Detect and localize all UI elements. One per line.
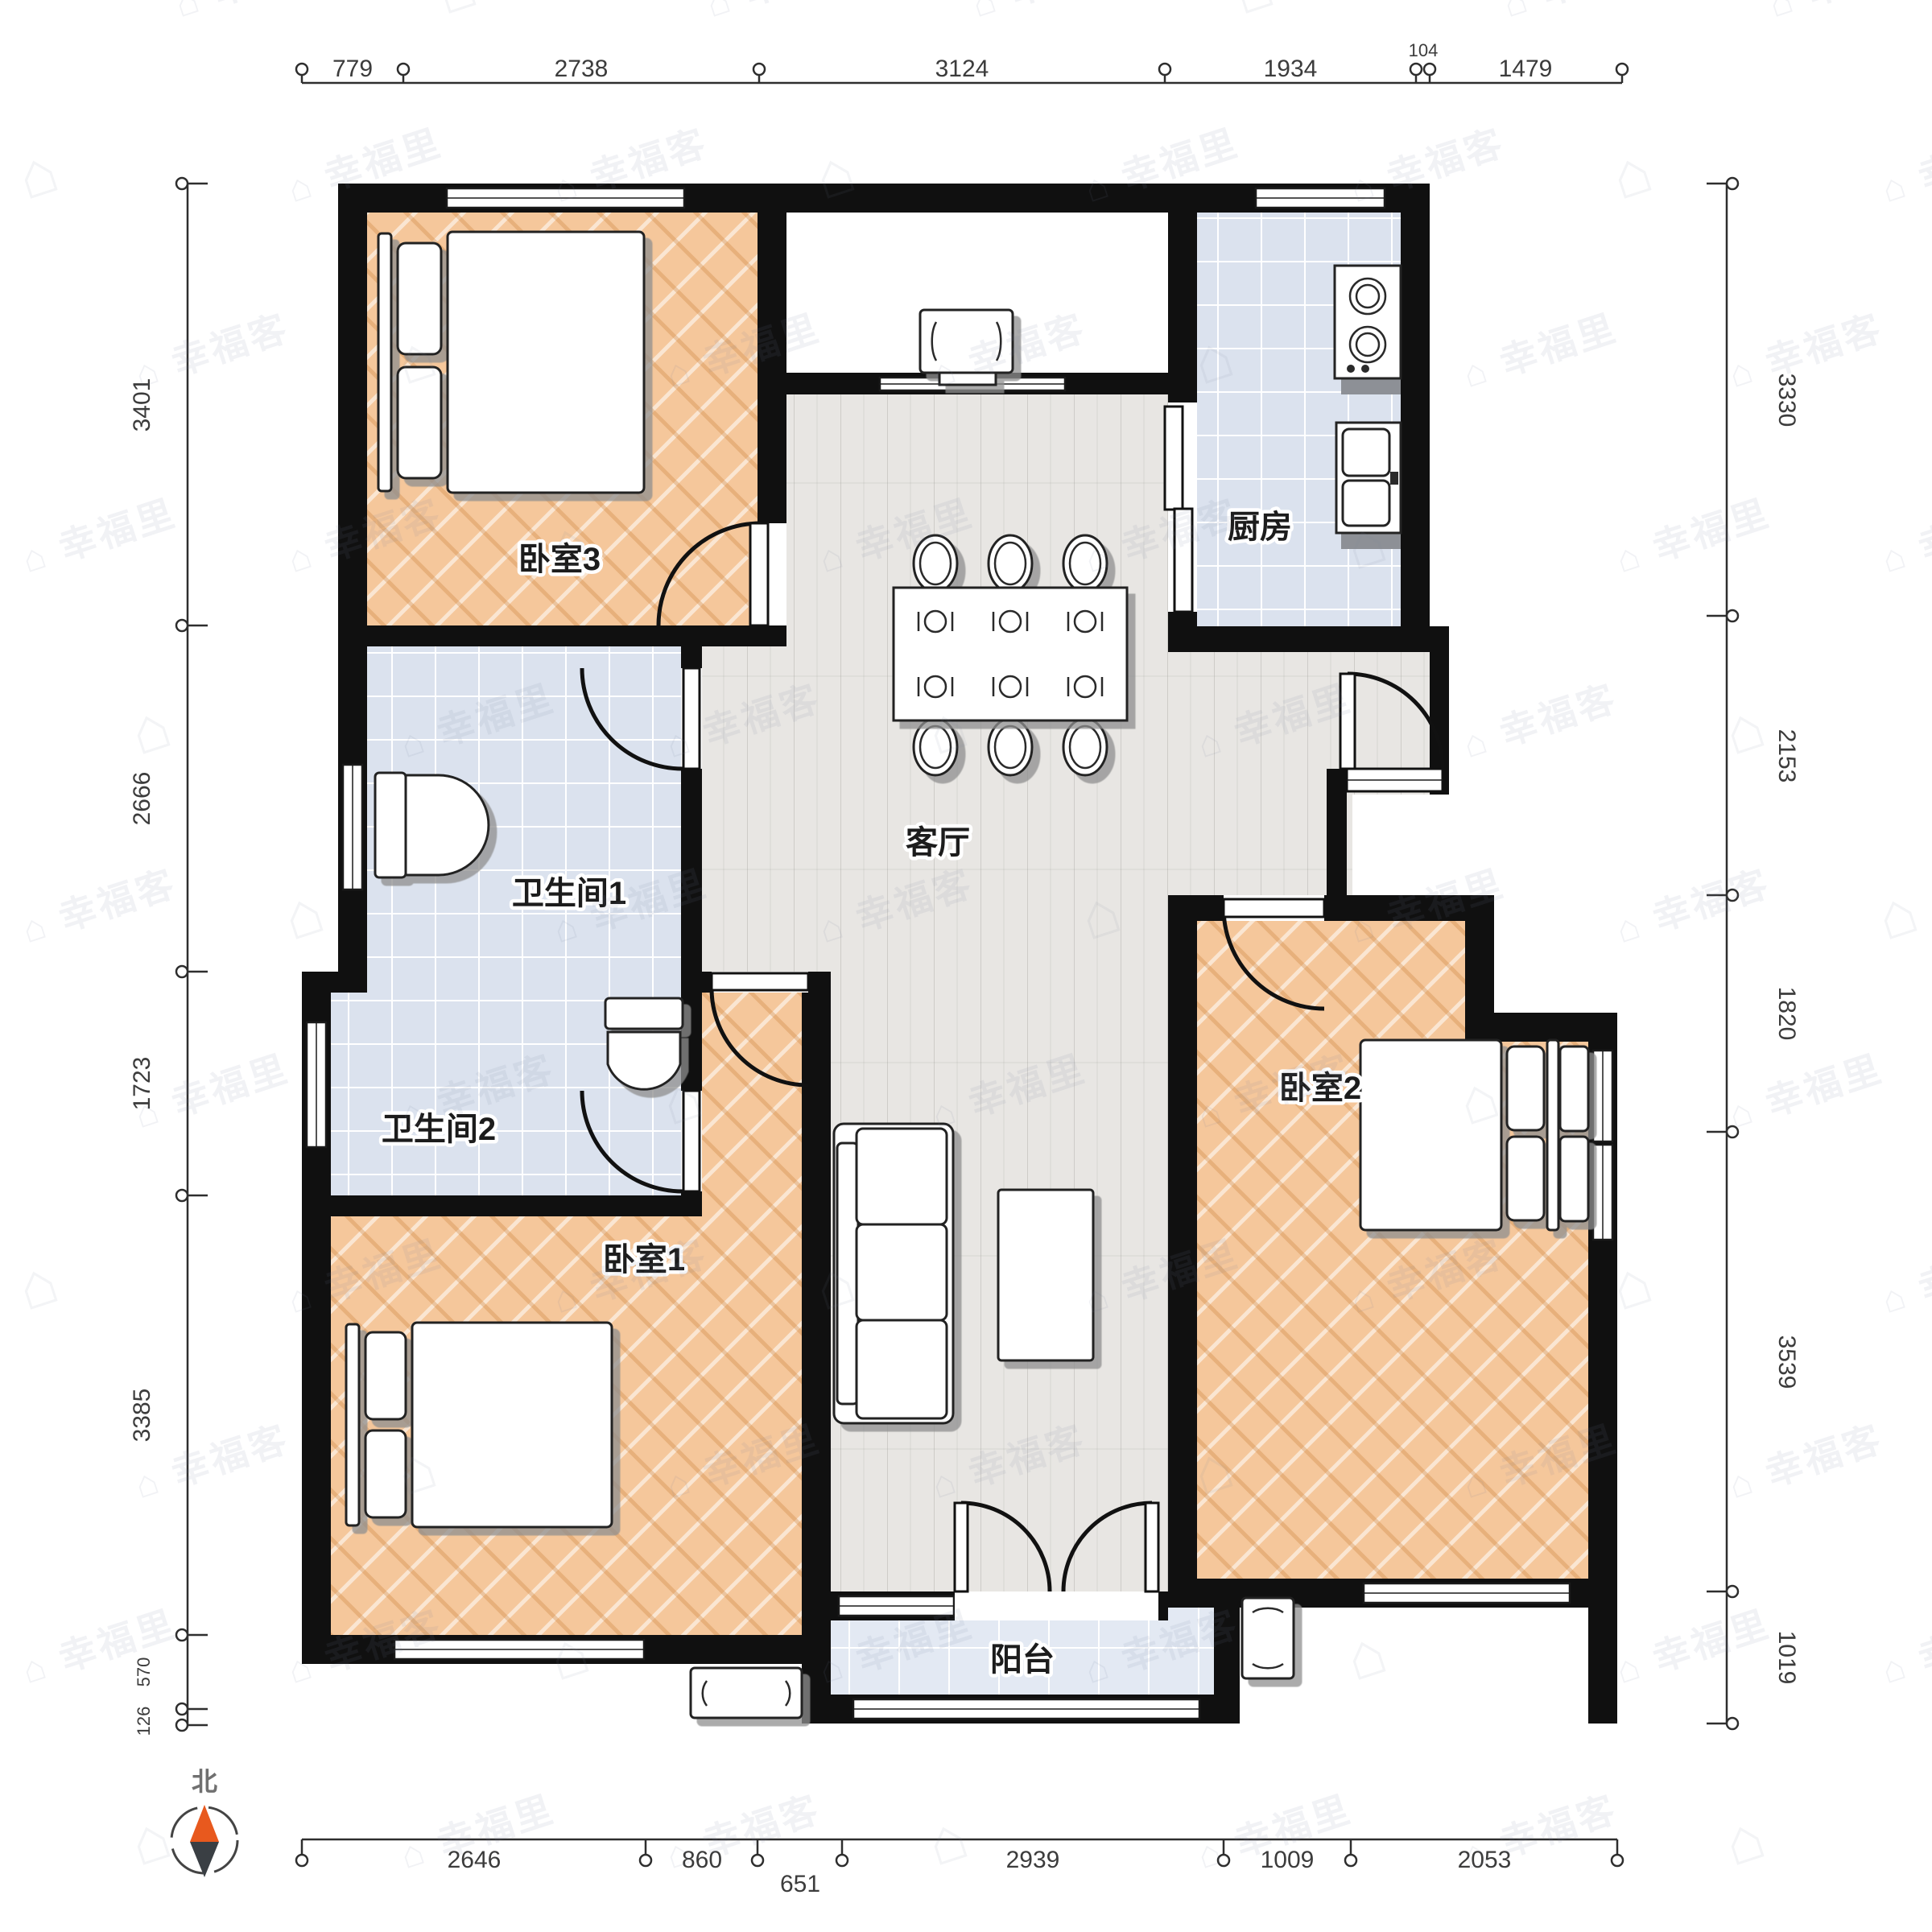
dim-left-3: 3385	[129, 1389, 155, 1443]
wall-niche-right	[1588, 1608, 1617, 1724]
label-bathroom2: 卫生间2	[382, 1112, 496, 1147]
dim-left-0: 3401	[129, 378, 155, 432]
dim-left-4: 570	[134, 1657, 154, 1687]
wall-kitchen-bottom	[1168, 626, 1449, 652]
wall-balcony-left	[802, 1591, 831, 1724]
dim-bottom-1: 860	[682, 1847, 722, 1873]
dim-left-2: 1723	[129, 1057, 155, 1111]
dim-top-3: 1934	[1264, 56, 1318, 82]
dining-set	[894, 535, 1127, 775]
wall-bath2-bottom	[302, 1195, 702, 1216]
bedroom2-east-window-b	[1593, 1145, 1612, 1240]
dim-right-3: 3539	[1773, 1335, 1800, 1389]
label-bedroom2: 卧室2	[1279, 1071, 1361, 1106]
sofa	[834, 1124, 953, 1423]
kitchen-window	[1256, 188, 1385, 208]
dim-bottom-3: 2939	[1006, 1847, 1060, 1873]
label-bathroom1: 卫生间1	[512, 876, 626, 911]
floor-plan: 卧室3 厨房 卫生间1 卫生间2 客厅 卧室1 卧室2 阳台 779 2738 …	[0, 0, 1932, 1932]
dim-top-5: 1479	[1499, 56, 1553, 82]
label-kitchen: 厨房	[1228, 510, 1292, 545]
dim-bottom-2: 651	[780, 1871, 820, 1897]
dim-top-1: 2738	[555, 56, 609, 82]
wall-bedroom3-bottom	[338, 625, 786, 646]
dim-right: 3330 2153 1820 3539 1019	[1707, 178, 1800, 1729]
dining-table	[894, 588, 1127, 720]
dim-bottom-4: 1009	[1261, 1847, 1315, 1873]
balcony-window	[853, 1699, 1199, 1719]
dim-right-0: 3330	[1773, 374, 1800, 427]
compass: 北	[171, 1767, 237, 1877]
balcony-side-cabinet	[1242, 1598, 1294, 1678]
dim-left: 3401 2666 1723 3385 570 126	[129, 178, 208, 1736]
dim-top-0: 779	[332, 56, 373, 82]
toilet-bathroom1	[375, 773, 489, 877]
compass-north-label: 北	[192, 1767, 217, 1796]
compass-needle-north	[190, 1805, 219, 1842]
dim-left-5: 126	[134, 1707, 154, 1736]
wall-bedroom2-left	[1168, 895, 1197, 1608]
bedroom1-window	[394, 1640, 644, 1659]
label-bedroom3: 卧室3	[518, 542, 601, 577]
wall-bedroom2-top	[1168, 895, 1494, 921]
bathroom2-window	[307, 1022, 326, 1147]
kitchen-sliding-door	[1165, 402, 1197, 612]
stove	[1335, 266, 1401, 394]
bedroom2-south-window	[1364, 1583, 1570, 1603]
dim-bottom-0: 2646	[448, 1847, 502, 1873]
coffee-table	[998, 1190, 1093, 1360]
label-bedroom1: 卧室1	[603, 1242, 685, 1278]
dim-top-4: 104	[1409, 40, 1439, 60]
floorplan-page: { "plan_type": "apartment-floor-plan", "…	[0, 0, 1932, 1932]
living-balcony-window	[839, 1596, 954, 1616]
dim-left-1: 2666	[129, 772, 155, 826]
dim-right-4: 1019	[1773, 1631, 1800, 1685]
bed-bedroom2	[1360, 1040, 1588, 1230]
wall-bath2-top-stub	[302, 972, 367, 993]
dim-top: 779 2738 3124 1934 104 1479	[296, 40, 1628, 83]
dim-top-2: 3124	[935, 56, 989, 82]
entry-cabinet	[920, 310, 1013, 385]
dim-bottom: 2646 860 651 2939 1009 2053	[296, 1839, 1623, 1897]
bathroom1-window	[343, 765, 362, 890]
outdoor-bench	[691, 1668, 802, 1718]
bedroom2-floor	[1197, 910, 1603, 1593]
dim-bottom-5: 2053	[1458, 1847, 1512, 1873]
bedroom2-east-window-a	[1593, 1051, 1612, 1141]
dim-right-1: 2153	[1773, 729, 1800, 783]
bedroom3-window	[447, 188, 684, 208]
toilet-bathroom2	[605, 998, 683, 1089]
label-balcony: 阳台	[990, 1642, 1055, 1678]
label-living: 客厅	[906, 825, 970, 861]
wall-bedroom1-right	[802, 993, 831, 1591]
dim-right-2: 1820	[1773, 987, 1800, 1041]
kitchen-sink	[1336, 423, 1401, 549]
wall-entry-elbow	[1327, 769, 1347, 906]
wall-kitchen-right	[1401, 184, 1430, 652]
